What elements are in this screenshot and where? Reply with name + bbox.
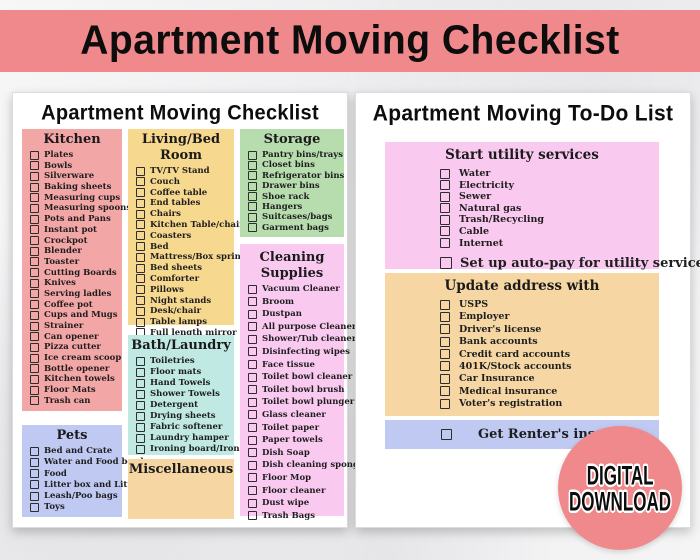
- checklist-item: Blender: [30, 246, 120, 256]
- checklist-item: Vacuum Cleaner: [248, 284, 342, 294]
- checklist-item: Pizza cutter: [30, 342, 120, 352]
- checkbox[interactable]: [30, 161, 39, 170]
- checklist-item: Credit card accounts: [440, 349, 659, 360]
- checkbox[interactable]: [30, 396, 39, 405]
- item-label: Dish Soap: [262, 448, 310, 458]
- cleaning-items: Vacuum Cleaner Broom Dustpan All purpose…: [240, 284, 344, 521]
- checklist-item: USPS: [440, 299, 659, 310]
- checklist-item: Voter's registration: [440, 398, 659, 409]
- checkbox[interactable]: [30, 225, 39, 234]
- checkbox[interactable]: [248, 473, 257, 482]
- item-label: Laundry hamper: [150, 433, 229, 443]
- checklist-item: Floor mats: [136, 367, 232, 377]
- marble-background: { "banner": { "title": "Apartment Moving…: [0, 0, 700, 560]
- item-label: Floor Mats: [44, 385, 96, 395]
- item-label: Plates: [44, 150, 73, 160]
- checkbox[interactable]: [30, 364, 39, 373]
- checklist-item: Drawer bins: [248, 181, 342, 191]
- checkbox[interactable]: [248, 202, 257, 211]
- item-label: Pizza cutter: [44, 342, 101, 352]
- section-title-kitchen: Kitchen: [22, 132, 122, 148]
- item-label: Shower/Tub cleaner: [262, 334, 356, 344]
- checkbox[interactable]: [30, 204, 39, 213]
- checkbox[interactable]: [248, 410, 257, 419]
- checkbox[interactable]: [440, 238, 450, 248]
- checkbox[interactable]: [30, 492, 39, 501]
- item-label: Floor mats: [150, 367, 201, 377]
- checkbox[interactable]: [30, 279, 39, 288]
- checkbox[interactable]: [30, 193, 39, 202]
- checklist-item: Instant pot: [30, 225, 120, 235]
- item-label: Voter's registration: [459, 398, 562, 409]
- checkbox[interactable]: [248, 511, 257, 520]
- checkbox[interactable]: [248, 448, 257, 457]
- item-label: Bottle opener: [44, 364, 109, 374]
- item-label: Employer: [459, 311, 509, 322]
- checkbox[interactable]: [30, 354, 39, 363]
- item-label: Car Insurance: [459, 373, 535, 384]
- item-label: Strainer: [44, 321, 83, 331]
- item-label: Pots and Pans: [44, 214, 111, 224]
- checkbox[interactable]: [248, 373, 257, 382]
- item-label: Garment bags: [262, 223, 329, 233]
- checkbox[interactable]: [136, 274, 145, 283]
- checklist-item: TV/TV Stand: [136, 166, 232, 176]
- item-label: Credit card accounts: [459, 349, 570, 360]
- checklist-item: Leash/Poo bags: [30, 491, 120, 501]
- item-label: Bed sheets: [150, 263, 202, 273]
- section-title-living: Living/Bed Room: [128, 132, 234, 164]
- checklist-item: Trash can: [30, 396, 120, 406]
- checklist-item: Face tissue: [248, 360, 342, 370]
- checklist-item: Couch: [136, 177, 232, 187]
- checkbox[interactable]: [136, 220, 145, 229]
- checklist-item: Trash Bags: [248, 511, 342, 521]
- item-label: Trash can: [44, 396, 90, 406]
- checklist-item: Cups and Mugs: [30, 310, 120, 320]
- item-label: End tables: [150, 198, 200, 208]
- checkbox[interactable]: [440, 312, 450, 322]
- checkbox[interactable]: [248, 335, 257, 344]
- item-label: Vacuum Cleaner: [262, 284, 340, 294]
- checkbox[interactable]: [136, 210, 145, 219]
- item-label: Glass cleaner: [262, 410, 326, 420]
- item-label: Toys: [44, 502, 65, 512]
- checkbox[interactable]: [136, 167, 145, 176]
- section-update-address: Update address with USPS Employer Driver…: [385, 273, 659, 416]
- checkbox[interactable]: [30, 322, 39, 331]
- item-label: Trash/Recycling: [459, 214, 544, 225]
- checkbox[interactable]: [440, 215, 450, 225]
- checklist-item: Night stands: [136, 296, 232, 306]
- item-label: Broom: [262, 297, 294, 307]
- checklist-item: Kitchen towels: [30, 374, 120, 384]
- checklist-item: Shoe rack: [248, 192, 342, 202]
- checklist-item: Toilet bowl brush: [248, 385, 342, 395]
- section-cleaning-supplies: Cleaning Supplies Vacuum Cleaner Broom D…: [240, 244, 344, 516]
- checklist-item: Dust wipe: [248, 498, 342, 508]
- item-label: Silverware: [44, 171, 94, 181]
- checkbox[interactable]: [30, 503, 39, 512]
- item-label: Sewer: [459, 191, 491, 202]
- checkbox[interactable]: [440, 361, 450, 371]
- checklist-item: Serving ladles: [30, 289, 120, 299]
- checkbox[interactable]: [248, 182, 257, 191]
- checkbox[interactable]: [248, 297, 257, 306]
- checklist-item: Toilet bowl cleaner: [248, 372, 342, 382]
- checklist-item: Water: [440, 168, 659, 179]
- item-label: Suitcases/bags: [262, 212, 332, 222]
- item-label: Hangers: [262, 202, 302, 212]
- checkbox[interactable]: [30, 183, 39, 192]
- checklist-item: Floor Mats: [30, 385, 120, 395]
- checkbox[interactable]: [30, 469, 39, 478]
- checkbox[interactable]: [248, 360, 257, 369]
- section-title-utilities: Start utility services: [385, 147, 659, 163]
- checkbox[interactable]: [30, 247, 39, 256]
- checklist-item: Measuring cups: [30, 193, 120, 203]
- section-title-bath: Bath/Laundry: [128, 338, 234, 354]
- checklist-item: Toiletries: [136, 356, 232, 366]
- autopay-checkbox[interactable]: [440, 257, 452, 269]
- left-page: Apartment Moving Checklist Kitchen Plate…: [12, 92, 348, 528]
- item-label: Toilet bowl plunger: [262, 397, 354, 407]
- checklist-item: Coffee pot: [30, 300, 120, 310]
- item-label: Water: [459, 168, 490, 179]
- checklist-item: Electricity: [440, 180, 659, 191]
- item-label: Pillows: [150, 285, 184, 295]
- checkbox[interactable]: [30, 386, 39, 395]
- item-label: Hand Towels: [150, 378, 210, 388]
- banner-title: Apartment Moving Checklist: [80, 18, 620, 64]
- checklist-item: Water and Food bowl: [30, 457, 120, 467]
- checklist-item: Fabric softener: [136, 422, 232, 432]
- checklist-item: Refrigerator bins: [248, 171, 342, 181]
- checkbox[interactable]: [440, 386, 450, 396]
- checkbox[interactable]: [136, 188, 145, 197]
- item-label: Toilet paper: [262, 423, 319, 433]
- checklist-item: Shower/Tub cleaner: [248, 334, 342, 344]
- checklist-item: Bed sheets: [136, 263, 232, 273]
- checklist-item: Drying sheets: [136, 411, 232, 421]
- checkbox[interactable]: [136, 199, 145, 208]
- item-label: Baking sheets: [44, 182, 111, 192]
- checkbox[interactable]: [440, 374, 450, 384]
- checklist-item: Coffee table: [136, 188, 232, 198]
- item-label: Trash Bags: [262, 511, 315, 521]
- checkbox[interactable]: [440, 180, 450, 190]
- checklist-item: All purpose Cleaner: [248, 322, 342, 332]
- checkbox[interactable]: [136, 296, 145, 305]
- item-label: Shoe rack: [262, 192, 309, 202]
- item-label: Dust wipe: [262, 498, 309, 508]
- checkbox[interactable]: [136, 357, 145, 366]
- checklist-item: Can opener: [30, 332, 120, 342]
- left-page-columns: Kitchen Plates Bowls Silverware Baking s…: [22, 129, 341, 519]
- section-title-misc: Miscellaneous: [128, 462, 234, 478]
- item-label: Coasters: [150, 231, 191, 241]
- checklist-item: Dish Soap: [248, 448, 342, 458]
- item-label: Couch: [150, 177, 180, 187]
- item-label: Mattress/Box spring: [150, 252, 247, 262]
- checkbox[interactable]: [136, 318, 145, 327]
- bath-items: Toiletries Floor mats Hand Towels Shower…: [128, 356, 234, 454]
- checkbox[interactable]: [136, 445, 145, 454]
- checkbox[interactable]: [248, 499, 257, 508]
- checkbox[interactable]: [30, 458, 39, 467]
- checkbox[interactable]: [136, 242, 145, 251]
- checkbox[interactable]: [248, 461, 257, 470]
- column-2: Living/Bed Room TV/TV Stand Couch Coffee…: [128, 129, 234, 519]
- checklist-item: Dustpan: [248, 309, 342, 319]
- item-label: Comforter: [150, 274, 199, 284]
- checkbox[interactable]: [30, 343, 39, 352]
- item-label: Bowls: [44, 161, 72, 171]
- checklist-item: Ice cream scoop: [30, 353, 120, 363]
- checklist-item: Disinfecting wipes: [248, 347, 342, 357]
- item-label: Crockpot: [44, 236, 88, 246]
- item-label: Internet: [459, 238, 503, 249]
- item-label: Serving ladles: [44, 289, 111, 299]
- checkbox[interactable]: [248, 192, 257, 201]
- checklist-item: Bank accounts: [440, 336, 659, 347]
- checkbox[interactable]: [440, 203, 450, 213]
- checklist-item: Toilet paper: [248, 423, 342, 433]
- checkbox[interactable]: [440, 324, 450, 334]
- checkbox[interactable]: [440, 337, 450, 347]
- checklist-item: Broom: [248, 297, 342, 307]
- checklist-item: Baking sheets: [30, 182, 120, 192]
- checkbox[interactable]: [248, 213, 257, 222]
- item-label: Bank accounts: [459, 336, 538, 347]
- checkbox[interactable]: [440, 300, 450, 310]
- living-items: TV/TV Stand Couch Coffee table End table…: [128, 166, 234, 338]
- checklist-item: Garment bags: [248, 223, 342, 233]
- checklist-item: Silverware: [30, 171, 120, 181]
- checklist-item: Shower Towels: [136, 389, 232, 399]
- item-label: Floor cleaner: [262, 486, 325, 496]
- insurance-checkbox[interactable]: [441, 429, 452, 440]
- checkbox[interactable]: [30, 447, 39, 456]
- checklist-item: Food: [30, 469, 120, 479]
- checkbox[interactable]: [440, 349, 450, 359]
- checkbox[interactable]: [136, 307, 145, 316]
- item-label: Natural gas: [459, 203, 521, 214]
- checklist-item: Coasters: [136, 231, 232, 241]
- item-label: USPS: [459, 299, 488, 310]
- checklist-item: Internet: [440, 238, 659, 249]
- section-storage: Storage Pantry bins/trays Closet bins Re…: [240, 129, 344, 237]
- checklist-item: Litter box and Litter: [30, 480, 120, 490]
- checkbox[interactable]: [30, 268, 39, 277]
- section-bath-laundry: Bath/Laundry Toiletries Floor mats Hand …: [128, 335, 234, 455]
- item-label: Toiletries: [150, 356, 195, 366]
- item-label: Food: [44, 469, 67, 479]
- item-label: Leash/Poo bags: [44, 491, 118, 501]
- checkbox[interactable]: [30, 289, 39, 298]
- checkbox[interactable]: [136, 423, 145, 432]
- checklist-item: Natural gas: [440, 203, 659, 214]
- autopay-label: Set up auto-pay for utility services: [460, 256, 700, 271]
- item-label: TV/TV Stand: [150, 166, 210, 176]
- checkbox[interactable]: [248, 161, 257, 170]
- checklist-item: Hand Towels: [136, 378, 232, 388]
- checklist-item: Closet bins: [248, 160, 342, 170]
- item-label: Coffee table: [150, 188, 207, 198]
- checkbox[interactable]: [248, 436, 257, 445]
- checklist-item: Mattress/Box spring: [136, 252, 232, 262]
- checkbox[interactable]: [136, 285, 145, 294]
- checkbox[interactable]: [30, 257, 39, 266]
- item-label: Blender: [44, 246, 82, 256]
- checklist-item: Cable: [440, 226, 659, 237]
- checklist-item: Bowls: [30, 161, 120, 171]
- checkbox[interactable]: [30, 172, 39, 181]
- checkbox[interactable]: [440, 226, 450, 236]
- item-label: Closet bins: [262, 160, 315, 170]
- section-title-cleaning: Cleaning Supplies: [240, 250, 344, 282]
- item-label: Cable: [459, 226, 489, 237]
- checklist-item: End tables: [136, 198, 232, 208]
- item-label: Drawer bins: [262, 181, 320, 191]
- checkbox[interactable]: [30, 300, 39, 309]
- digital-download-badge: DIGITAL DOWNLOAD: [558, 426, 682, 550]
- checkbox[interactable]: [136, 231, 145, 240]
- item-label: Detergent: [150, 400, 198, 410]
- checkbox[interactable]: [440, 399, 450, 409]
- item-label: Pantry bins/trays: [262, 150, 343, 160]
- item-label: Measuring cups: [44, 193, 120, 203]
- item-label: Electricity: [459, 180, 514, 191]
- checkbox[interactable]: [136, 177, 145, 186]
- checklist-item: Laundry hamper: [136, 433, 232, 443]
- checklist-item: 401K/Stock accounts: [440, 361, 659, 372]
- column-3: Storage Pantry bins/trays Closet bins Re…: [240, 129, 344, 519]
- item-label: Refrigerator bins: [262, 171, 344, 181]
- checkbox[interactable]: [136, 368, 145, 377]
- checklist-item: Car Insurance: [440, 373, 659, 384]
- item-label: Desk/chair: [150, 306, 201, 316]
- item-label: Disinfecting wipes: [262, 347, 350, 357]
- checklist-item: Kitchen Table/chairs: [136, 220, 232, 230]
- checklist-item: Suitcases/bags: [248, 212, 342, 222]
- item-label: Face tissue: [262, 360, 315, 370]
- checklist-item: Strainer: [30, 321, 120, 331]
- section-living-bedroom: Living/Bed Room TV/TV Stand Couch Coffee…: [128, 129, 234, 325]
- item-label: Toilet bowl brush: [262, 385, 344, 395]
- checklist-item: Chairs: [136, 209, 232, 219]
- checkbox[interactable]: [248, 223, 257, 232]
- section-miscellaneous: Miscellaneous: [128, 459, 234, 519]
- item-label: Coffee pot: [44, 300, 93, 310]
- checkbox[interactable]: [248, 347, 257, 356]
- checklist-item: Employer: [440, 311, 659, 322]
- checkbox[interactable]: [30, 375, 39, 384]
- checklist-item: Driver's license: [440, 324, 659, 335]
- checklist-item: Table lamps: [136, 317, 232, 327]
- checkbox[interactable]: [136, 253, 145, 262]
- checkbox[interactable]: [136, 379, 145, 388]
- checkbox[interactable]: [30, 151, 39, 160]
- checkbox[interactable]: [248, 151, 257, 160]
- checklist-item: Floor cleaner: [248, 486, 342, 496]
- item-label: Can opener: [44, 332, 99, 342]
- checkbox[interactable]: [248, 385, 257, 394]
- checkbox[interactable]: [30, 332, 39, 341]
- checklist-item: Cutting Boards: [30, 268, 120, 278]
- checklist-item: Bed and Crate: [30, 446, 120, 456]
- checkbox[interactable]: [136, 390, 145, 399]
- checkbox[interactable]: [248, 322, 257, 331]
- checkbox[interactable]: [30, 236, 39, 245]
- checkbox[interactable]: [30, 215, 39, 224]
- item-label: All purpose Cleaner: [262, 322, 356, 332]
- checklist-item: Pantry bins/trays: [248, 150, 342, 160]
- checkbox[interactable]: [440, 169, 450, 179]
- item-label: 401K/Stock accounts: [459, 361, 571, 372]
- pets-items: Bed and Crate Water and Food bowl Food L…: [22, 446, 122, 512]
- checklist-item: Dish cleaning sponge: [248, 460, 342, 470]
- checkbox[interactable]: [30, 480, 39, 489]
- item-label: Bed and Crate: [44, 446, 112, 456]
- checkbox[interactable]: [248, 310, 257, 319]
- checklist-item: Toaster: [30, 257, 120, 267]
- checklist-item: Desk/chair: [136, 306, 232, 316]
- checklist-item: Measuring spoons: [30, 203, 120, 213]
- section-start-utility-services: Start utility services Water Electricity…: [385, 142, 659, 269]
- section-kitchen: Kitchen Plates Bowls Silverware Baking s…: [22, 129, 122, 411]
- right-page-title: Apartment Moving To-Do List: [356, 101, 690, 126]
- item-label: Dish cleaning sponge: [262, 460, 364, 470]
- checkbox[interactable]: [248, 486, 257, 495]
- checklist-item: Trash/Recycling: [440, 214, 659, 225]
- item-label: Knives: [44, 278, 76, 288]
- item-label: Table lamps: [150, 317, 207, 327]
- checkbox[interactable]: [136, 401, 145, 410]
- item-label: Fabric softener: [150, 422, 222, 432]
- checkbox[interactable]: [440, 192, 450, 202]
- checklist-item: Plates: [30, 150, 120, 160]
- badge-line-2: DOWNLOAD: [569, 486, 671, 517]
- item-label: Bed: [150, 242, 169, 252]
- checkbox[interactable]: [136, 264, 145, 273]
- section-title-storage: Storage: [240, 132, 344, 148]
- checklist-item: Comforter: [136, 274, 232, 284]
- section-title-address: Update address with: [385, 278, 659, 294]
- item-label: Dustpan: [262, 309, 302, 319]
- item-label: Floor Mop: [262, 473, 311, 483]
- checkbox[interactable]: [136, 412, 145, 421]
- checkbox[interactable]: [248, 171, 257, 180]
- item-label: Instant pot: [44, 225, 97, 235]
- item-label: Ice cream scoop: [44, 353, 121, 363]
- checklist-item: Paper towels: [248, 435, 342, 445]
- checkbox[interactable]: [136, 434, 145, 443]
- checklist-item: Knives: [30, 278, 120, 288]
- checkbox[interactable]: [30, 311, 39, 320]
- checklist-item: Toys: [30, 502, 120, 512]
- item-label: Kitchen towels: [44, 374, 115, 384]
- checkbox[interactable]: [248, 423, 257, 432]
- item-label: Drying sheets: [150, 411, 216, 421]
- checkbox[interactable]: [248, 398, 257, 407]
- checkbox[interactable]: [248, 285, 257, 294]
- checklist-item: Glass cleaner: [248, 410, 342, 420]
- item-label: Measuring spoons: [44, 203, 131, 213]
- section-title-pets: Pets: [22, 428, 122, 444]
- autopay-row: Set up auto-pay for utility services: [440, 256, 659, 271]
- item-label: Cups and Mugs: [44, 310, 118, 320]
